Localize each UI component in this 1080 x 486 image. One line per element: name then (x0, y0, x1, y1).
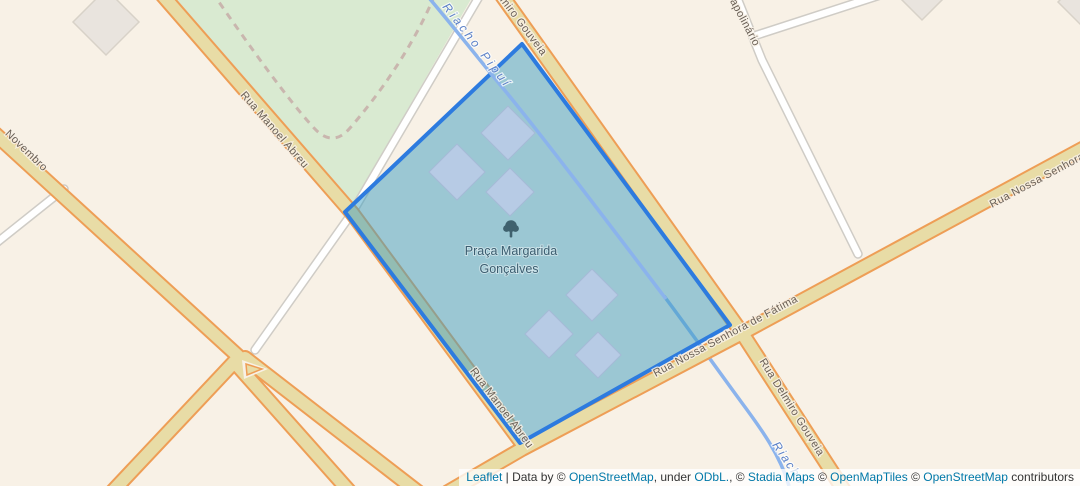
attribution-text: contributors (1008, 470, 1074, 484)
odbl-link[interactable]: ODbL. (694, 470, 729, 484)
poi-label-line1: Praça Margarida (465, 244, 557, 258)
attribution-text: , under (654, 470, 695, 484)
attribution-bar: Leaflet | Data by © OpenStreetMap, under… (459, 469, 1080, 486)
osm-link[interactable]: OpenStreetMap (569, 470, 654, 484)
attribution-separator: | (502, 470, 512, 484)
map-viewport[interactable]: Rua Manoel Abreu Rua Manoel Abreu Delmir… (0, 0, 1080, 486)
leaflet-link[interactable]: Leaflet (466, 470, 502, 484)
attribution-text: Data by © (512, 470, 569, 484)
openmaptiles-link[interactable]: OpenMapTiles (830, 470, 908, 484)
osm-contributors-link[interactable]: OpenStreetMap (923, 470, 1008, 484)
attribution-text: © (908, 470, 924, 484)
attribution-text: , © (729, 470, 748, 484)
stadia-maps-link[interactable]: Stadia Maps (748, 470, 815, 484)
attribution-text: © (815, 470, 831, 484)
poi-label-line2: Gonçalves (479, 262, 538, 276)
map-canvas[interactable]: Rua Manoel Abreu Rua Manoel Abreu Delmir… (0, 0, 1080, 486)
